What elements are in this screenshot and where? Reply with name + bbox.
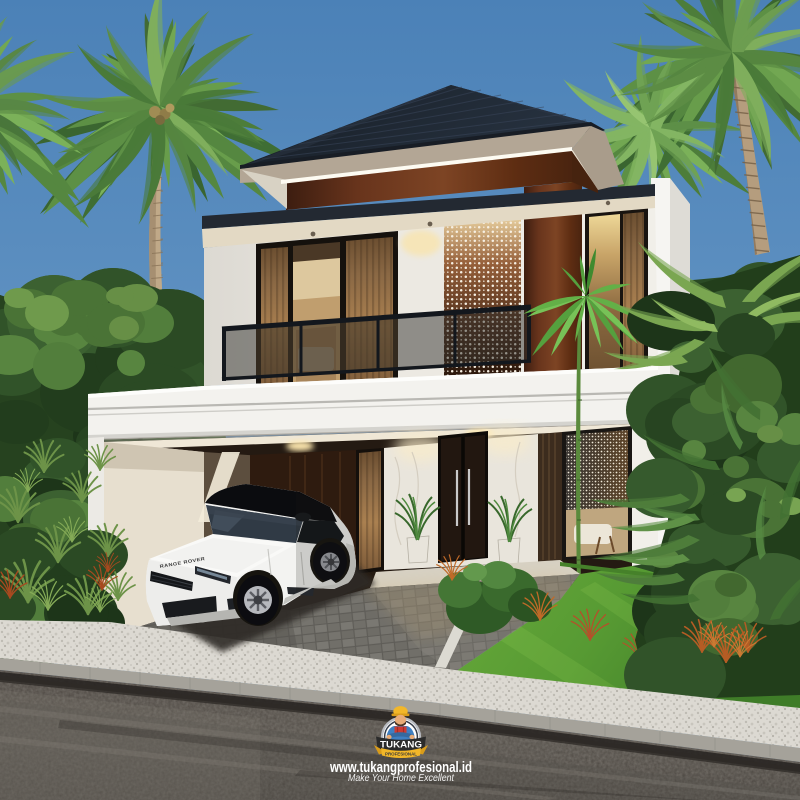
svg-text:PROFESIONAL: PROFESIONAL [385,751,417,756]
svg-text:Make Your Home Excellent: Make Your Home Excellent [348,772,455,784]
svg-text:TUKANG: TUKANG [380,740,422,750]
